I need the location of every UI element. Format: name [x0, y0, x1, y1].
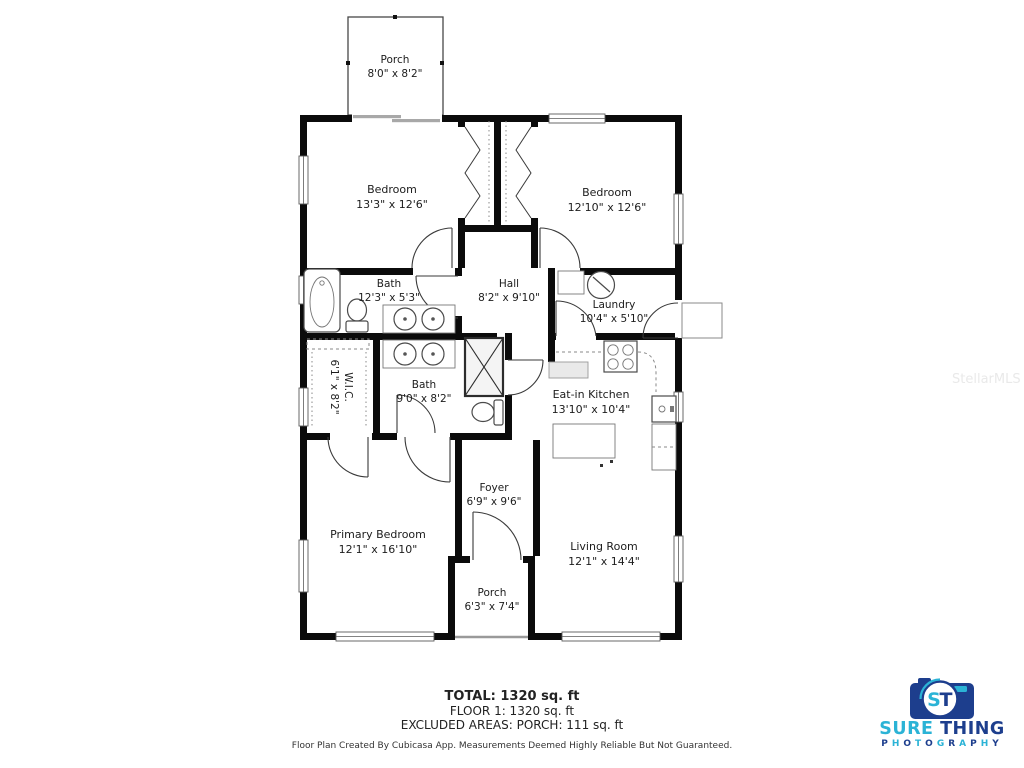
kitchen-sink-icon [652, 396, 676, 422]
room-label-kitchen: Eat-in Kitchen [553, 388, 630, 401]
door [508, 360, 543, 395]
logo-word-thing: THING [940, 719, 1005, 739]
floor-plan-page: { "rooms": [ {"id": "porch-top", "name":… [0, 0, 1024, 768]
room-dims-bedroom-right: 12'10" x 12'6" [568, 201, 647, 214]
door [643, 300, 682, 338]
camera-icon: S T [907, 672, 977, 720]
room-label-primary-bedroom: Primary Bedroom [330, 528, 426, 541]
room-dims-porch-top: 8'0" x 8'2" [367, 68, 422, 80]
window [299, 388, 308, 426]
room-label-bath-second: Bath [412, 379, 436, 391]
window [336, 632, 434, 641]
sliding-door [352, 114, 442, 123]
door [405, 437, 450, 482]
room-dims-bath-second: 9'0" x 8'2" [396, 393, 451, 405]
room-dims-porch-bottom: 6'3" x 7'4" [464, 601, 519, 613]
room-label-foyer: Foyer [479, 482, 509, 494]
room-dims-primary-bedroom: 12'1" x 16'10" [339, 543, 418, 556]
room-label-porch-bottom: Porch [478, 587, 507, 599]
logo-word-sure: SURE [879, 719, 933, 739]
window [674, 536, 683, 582]
door [412, 228, 452, 268]
window [299, 540, 308, 592]
window [549, 114, 605, 123]
room-label-porch-top: Porch [381, 54, 410, 66]
logo-name: SURE THING [868, 721, 1016, 738]
kitchen-table [553, 424, 615, 467]
shower-icon [465, 338, 503, 396]
mls-watermark: StellarMLS [952, 372, 1024, 387]
room-label-laundry: Laundry [593, 299, 636, 311]
toilet-icon [472, 400, 503, 425]
room-dims-living-room: 12'1" x 14'4" [568, 555, 640, 568]
room-label-bath-main: Bath [377, 278, 401, 290]
window [562, 632, 660, 641]
room-label-wic: W.I.C. [342, 372, 354, 402]
monogram-t: T [940, 689, 953, 711]
room-label-living-room: Living Room [570, 540, 638, 553]
sure-thing-photography-logo: S T SURE THING PHOTOGRAPHY [868, 672, 1016, 750]
window [674, 194, 683, 244]
room-dims-bath-main: 12'3" x 5'3" [358, 292, 420, 304]
washer-icon [558, 271, 615, 299]
bathtub-icon [304, 269, 340, 332]
room-label-bedroom-right: Bedroom [582, 186, 632, 199]
stove-icon [604, 341, 637, 372]
double-sink-vanity-icon [383, 340, 455, 368]
window [299, 156, 308, 204]
room-dims-wic: 6'1" x 8'2" [328, 359, 340, 414]
room-dims-bedroom-left: 13'3" x 12'6" [356, 198, 428, 211]
door [473, 512, 521, 560]
double-sink-vanity-icon [383, 305, 455, 333]
door [540, 228, 580, 268]
floor-plan-drawing: Porch 8'0" x 8'2" Bedroom 13'3" x 12'6" … [0, 0, 1024, 768]
door [328, 437, 368, 477]
room-label-hall: Hall [499, 278, 519, 290]
room-dims-laundry: 10'4" x 5'10" [580, 313, 648, 325]
room-label-bedroom-left: Bedroom [367, 183, 417, 196]
room-dims-hall: 8'2" x 9'10" [478, 292, 540, 304]
room-dims-kitchen: 13'10" x 10'4" [552, 403, 631, 416]
logo-photography: PHOTOGRAPHY [868, 739, 1016, 750]
room-dims-foyer: 6'9" x 9'6" [466, 496, 521, 508]
exterior-landing [682, 303, 722, 338]
